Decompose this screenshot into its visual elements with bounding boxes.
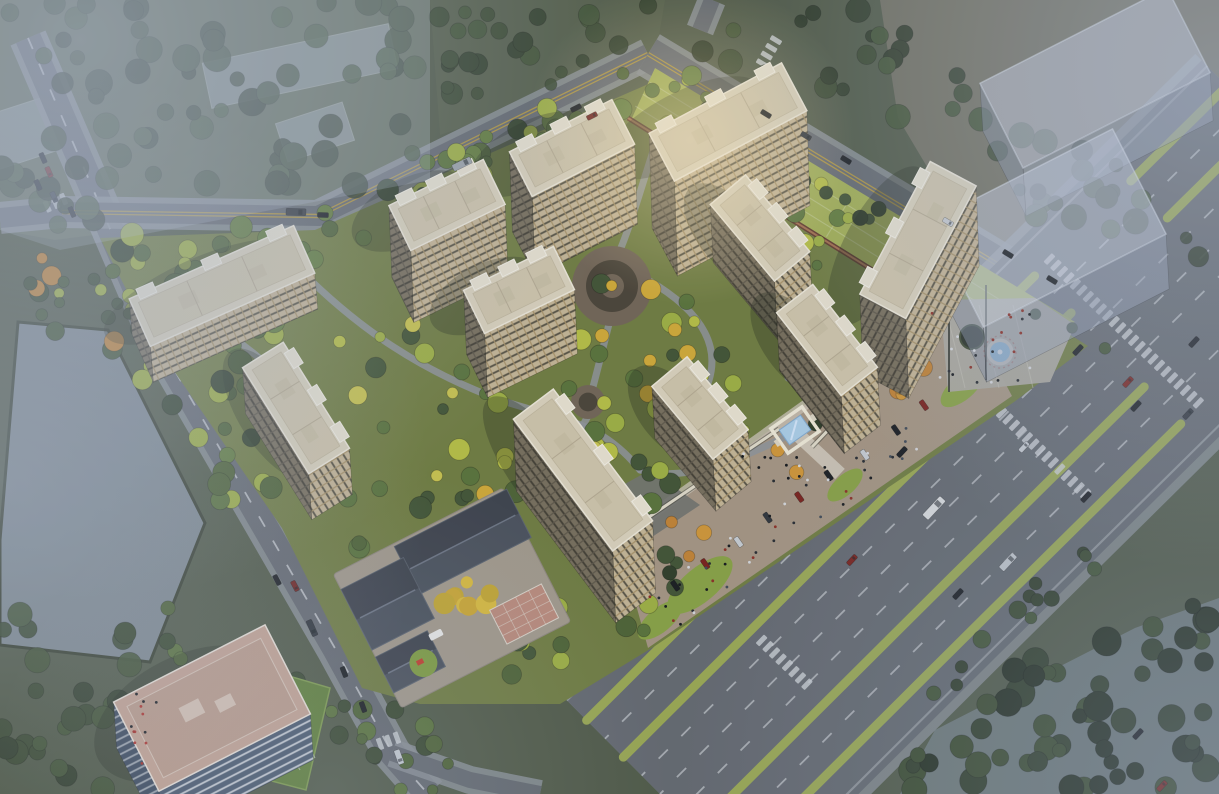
scene-svg bbox=[0, 0, 1219, 794]
aerial-render-view: Aerial rendering of a residential commun… bbox=[0, 0, 1219, 794]
atmosphere-haze-layer bbox=[0, 0, 1219, 794]
